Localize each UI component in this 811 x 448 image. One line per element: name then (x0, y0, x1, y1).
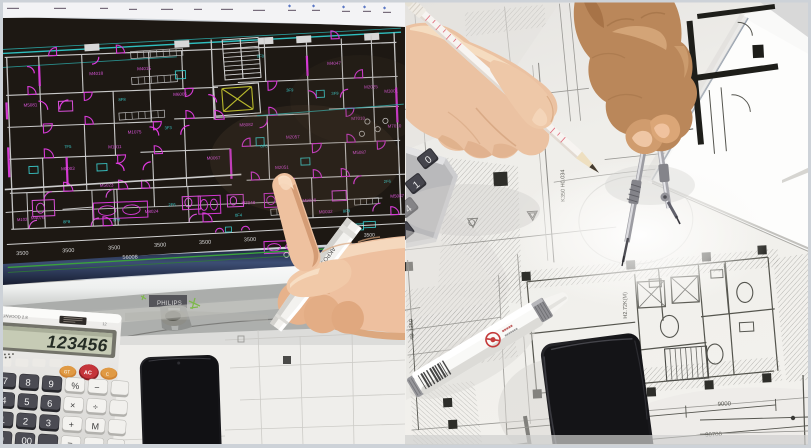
svg-text:7: 7 (2, 376, 8, 387)
svg-text:▬▬▬: ▬▬▬ (7, 5, 19, 10)
svg-text:▬▬: ▬▬ (194, 6, 202, 11)
svg-text:3500: 3500 (154, 242, 166, 248)
svg-text:8F8: 8F8 (118, 97, 126, 102)
svg-text:3500: 3500 (108, 245, 120, 251)
svg-text:×: × (70, 400, 76, 410)
svg-text:56008: 56008 (122, 254, 138, 261)
svg-text:M102: M102 (17, 217, 28, 222)
svg-text:M6005: M6005 (173, 91, 187, 97)
svg-text:2F6: 2F6 (168, 202, 176, 207)
svg-text:÷: ÷ (93, 402, 99, 412)
svg-text:M: M (91, 421, 99, 431)
svg-text:0F4: 0F4 (235, 212, 243, 217)
svg-text:▬▬▬: ▬▬▬ (54, 5, 66, 10)
svg-text:▬▬▬: ▬▬▬ (253, 7, 265, 12)
svg-text:▬▬: ▬▬ (129, 6, 137, 11)
svg-text:3500: 3500 (244, 237, 256, 243)
svg-text:8F8: 8F8 (63, 219, 71, 224)
svg-text:3F3: 3F3 (164, 125, 172, 130)
svg-text:M5081: M5081 (23, 102, 37, 108)
svg-text:7F5: 7F5 (64, 144, 72, 149)
svg-text:8: 8 (25, 377, 31, 388)
svg-text:5: 5 (24, 397, 30, 408)
svg-text:M8024: M8024 (145, 209, 159, 215)
svg-text:+: + (68, 420, 74, 430)
svg-text:0F0: 0F0 (257, 53, 265, 58)
svg-text:8F8: 8F8 (113, 217, 121, 222)
svg-text:3500: 3500 (199, 240, 211, 246)
svg-text:4B-1350: 4B-1350 (409, 319, 416, 340)
svg-text:AC: AC (84, 370, 92, 377)
svg-text:3500: 3500 (16, 251, 28, 257)
svg-text:3: 3 (45, 418, 51, 429)
svg-text:M0003: M0003 (61, 166, 75, 172)
svg-text:M1075: M1075 (128, 129, 142, 135)
svg-text:−: − (94, 382, 100, 392)
svg-text:9: 9 (48, 379, 54, 390)
svg-text:9000: 9000 (717, 401, 731, 408)
svg-text:M5087: M5087 (390, 193, 404, 199)
svg-text:GT: GT (64, 369, 71, 374)
svg-text:M1011: M1011 (108, 144, 122, 150)
svg-text:▬▬▬: ▬▬▬ (161, 6, 173, 11)
svg-text:3500: 3500 (62, 248, 74, 254)
svg-text:▬▬: ▬▬ (100, 5, 108, 10)
svg-text:6: 6 (47, 399, 53, 410)
svg-text:M4018: M4018 (89, 71, 103, 77)
svg-text:2: 2 (22, 416, 28, 427)
svg-text:%: % (71, 381, 80, 392)
svg-text:▬▬▬: ▬▬▬ (221, 6, 233, 11)
svg-text:M4015: M4015 (137, 66, 151, 72)
